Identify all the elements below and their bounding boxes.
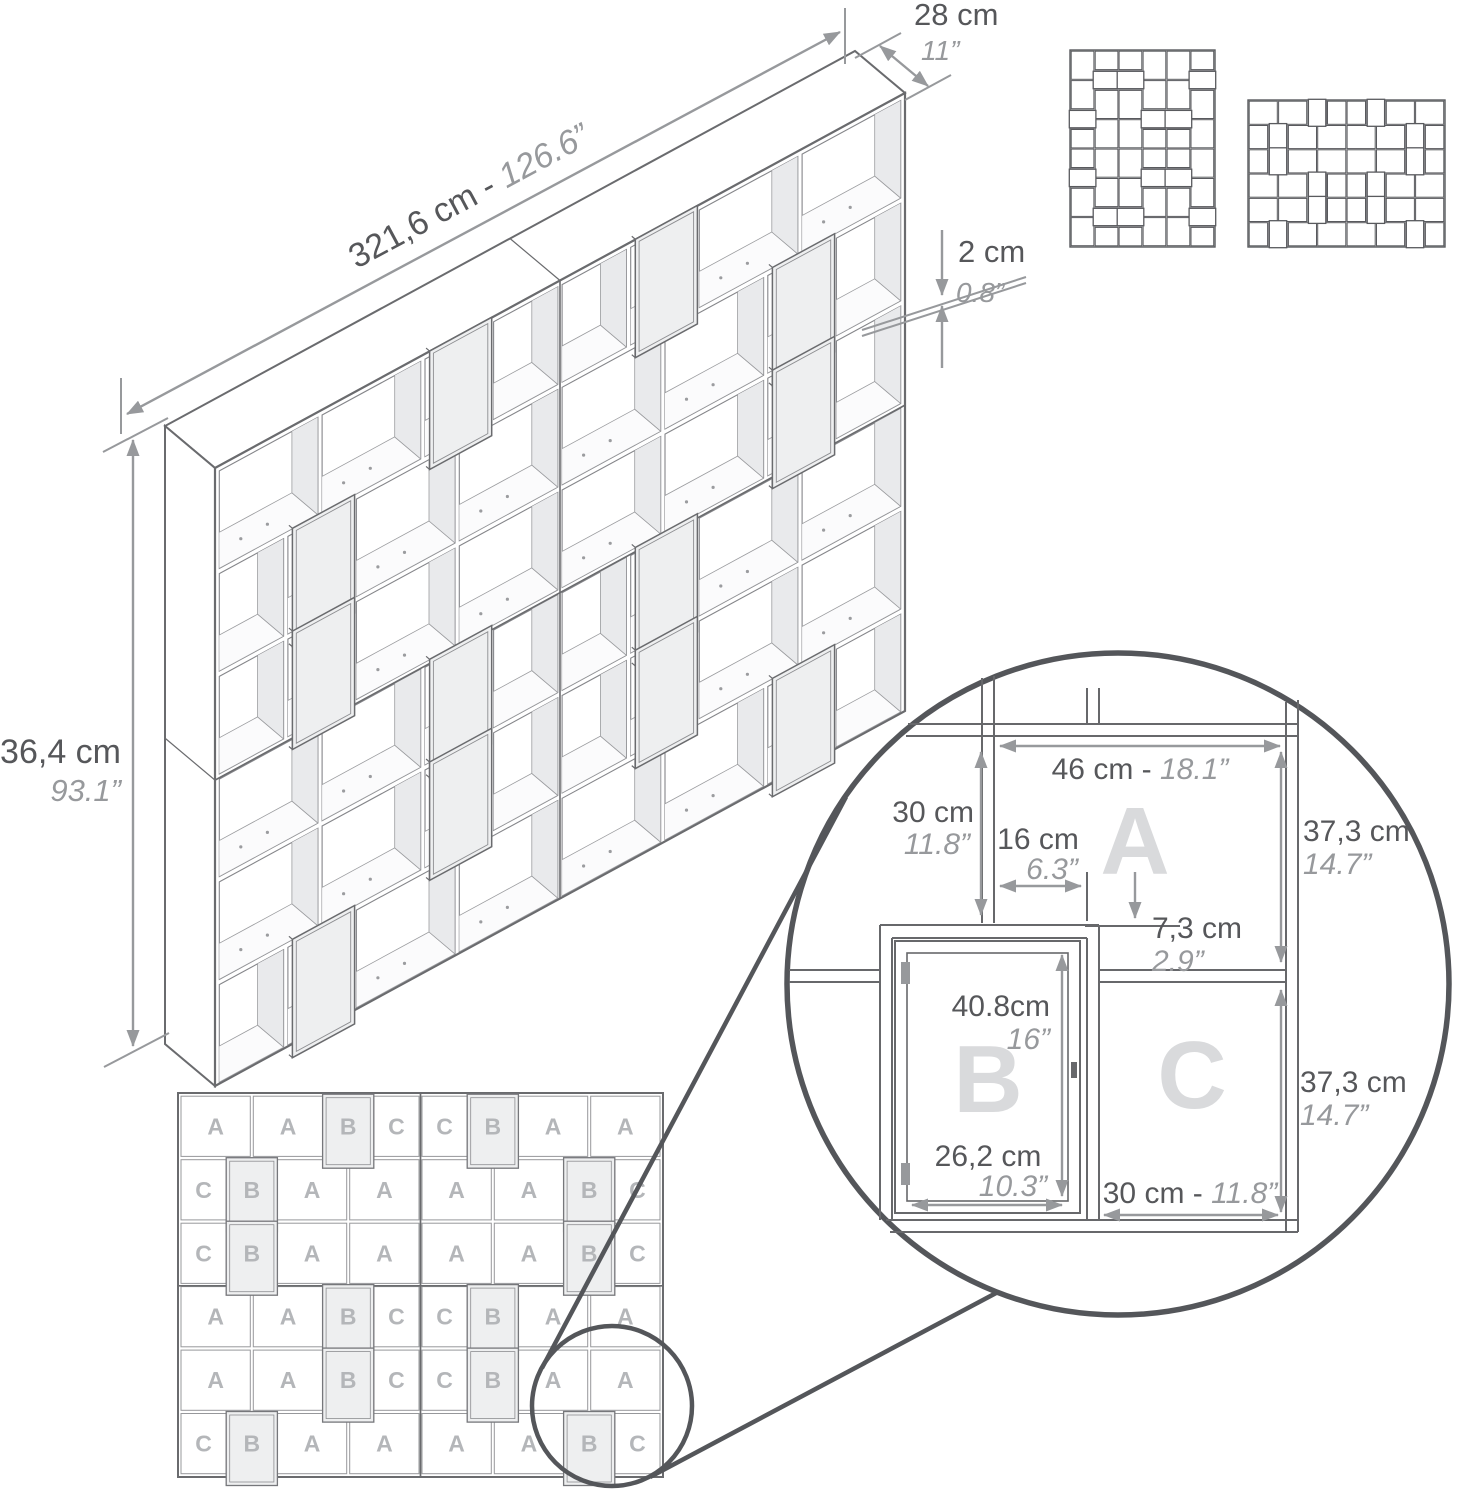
detail-view: A B C 46 cm - 18.1” 30 cm 11.8” 16 cm 6.… [789, 676, 1410, 1232]
front-cell-letter: C [388, 1367, 405, 1393]
front-cell-letter: A [545, 1304, 562, 1330]
front-cell-letter: A [207, 1113, 224, 1139]
front-cell-letter: A [280, 1113, 297, 1139]
screw-dot [685, 809, 688, 812]
front-cell-letter: A [521, 1177, 538, 1203]
front-cell-letter: C [629, 1240, 646, 1266]
thumb-door [1308, 172, 1325, 199]
front-cell-letter: B [484, 1304, 501, 1330]
thumb-door [1069, 169, 1096, 186]
screw-dot [403, 551, 406, 554]
front-cell-letter: A [376, 1431, 393, 1457]
front-cell-letter: A [617, 1367, 634, 1393]
screw-dot [376, 976, 379, 979]
front-cell-letter: C [388, 1304, 405, 1330]
screw-dot [609, 850, 612, 853]
screw-dot [376, 565, 379, 568]
front-cell-letter: A [448, 1431, 465, 1457]
screw-dot [479, 612, 482, 615]
screw-dot [849, 206, 852, 209]
screw-dot [746, 673, 749, 676]
detail-offset-in: 2.9” [1151, 945, 1206, 978]
screw-dot [369, 467, 372, 470]
door-handle [1071, 1062, 1077, 1078]
screw-dot [609, 439, 612, 442]
front-cell-letter: A [304, 1177, 321, 1203]
detail-door-width-in: 10.3” [979, 1170, 1049, 1203]
detail-door-height-in: 16” [1007, 1023, 1052, 1056]
front-elevation-grid: AABCCBAACBAAAABCCBAAAABCAABCCBAAAABCCBAA… [178, 1093, 663, 1486]
detail-door-width-cm: 26,2 cm [935, 1140, 1042, 1173]
detail-a-width-label: 46 cm - 18.1” [1052, 753, 1231, 786]
thumb-door [1269, 124, 1286, 151]
front-cell-letter: B [581, 1431, 598, 1457]
front-cell-letter: A [448, 1177, 465, 1203]
thickness-cm-label: 2 cm [958, 234, 1025, 269]
screw-dot [506, 906, 509, 909]
detail-door-height-cm: 40.8cm [952, 990, 1050, 1023]
screw-dot [609, 542, 612, 545]
front-cell-letter: A [304, 1240, 321, 1266]
front-cell-letter: B [243, 1240, 260, 1266]
front-cell-letter: B [243, 1177, 260, 1203]
screw-dot [239, 845, 242, 848]
front-cell-letter: A [304, 1431, 321, 1457]
detail-row-top-cm: 37,3 cm [1303, 815, 1410, 848]
screw-dot [712, 794, 715, 797]
screw-dot [479, 920, 482, 923]
screw-dot [849, 617, 852, 620]
detail-row-top-in: 14.7” [1303, 848, 1373, 881]
pattern-thumbnail-horizontal [1248, 99, 1445, 247]
detail-letter-c: C [1157, 1022, 1226, 1129]
thumb-door [1117, 71, 1144, 88]
screw-dot [266, 831, 269, 834]
front-cell-letter: B [243, 1431, 260, 1457]
thumb-door [1367, 196, 1384, 223]
detail-slot-height-in: 11.8” [904, 828, 972, 861]
front-cell-letter: A [376, 1177, 393, 1203]
screw-dot [342, 892, 345, 895]
thumb-door [1269, 148, 1286, 175]
detail-row-bottom-in: 14.7” [1300, 1099, 1370, 1132]
screw-dot [239, 537, 242, 540]
screw-dot [849, 514, 852, 517]
detail-slot-height-cm: 30 cm [892, 796, 974, 829]
height-in-label: 93.1” [50, 773, 122, 808]
door-hinge-top [901, 962, 910, 984]
front-cell-letter: C [195, 1177, 212, 1203]
screw-dot [342, 789, 345, 792]
detail-slot-width-cm: 16 cm [997, 823, 1079, 856]
thumb-door [1406, 124, 1423, 151]
front-cell-letter: C [629, 1431, 646, 1457]
screw-dot [719, 276, 722, 279]
screw-dot [582, 556, 585, 559]
thumb-door [1269, 221, 1286, 248]
screw-dot [342, 481, 345, 484]
thumb-door [1165, 110, 1192, 127]
shelf-dimension-diagram: 321,6 cm - 126.6” 28 cm 11” 2 cm 0.8” 23… [0, 0, 1457, 1500]
front-cell-letter: C [195, 1431, 212, 1457]
screw-dot [582, 454, 585, 457]
screw-dot [719, 687, 722, 690]
front-cell-letter: A [521, 1431, 538, 1457]
screw-dot [479, 509, 482, 512]
screw-dot [685, 500, 688, 503]
front-cell-letter: C [436, 1113, 453, 1139]
front-cell-letter: C [195, 1240, 212, 1266]
screw-dot [506, 495, 509, 498]
thumb-door [1367, 99, 1384, 126]
screw-dot [403, 962, 406, 965]
screw-dot [582, 864, 585, 867]
screw-dot [685, 398, 688, 401]
front-cell-letter: A [545, 1113, 562, 1139]
thumb-door [1406, 148, 1423, 175]
front-cell-letter: C [436, 1367, 453, 1393]
thumb-door [1406, 221, 1423, 248]
thumb-door [1308, 99, 1325, 126]
front-cell-letter: B [484, 1367, 501, 1393]
screw-dot [239, 948, 242, 951]
pattern-thumbnail-vertical [1069, 50, 1215, 247]
front-cell-letter: A [448, 1240, 465, 1266]
depth-extension-back [855, 33, 901, 58]
thumb-door [1069, 110, 1096, 127]
screw-dot [369, 878, 372, 881]
door-hinge-bottom [901, 1163, 910, 1185]
detail-slot-width-in: 6.3” [1026, 853, 1080, 886]
thumb-door [1367, 172, 1384, 199]
screw-dot [403, 654, 406, 657]
front-cell-letter: A [376, 1240, 393, 1266]
thumb-door [1189, 71, 1216, 88]
thumb-door [1141, 169, 1168, 186]
height-extension-bottom [104, 1033, 169, 1067]
detail-c-width-label: 30 cm - 11.8” [1103, 1177, 1280, 1210]
height-extension-top [103, 418, 168, 452]
front-cell-letter: B [484, 1113, 501, 1139]
thumb-door [1308, 196, 1325, 223]
detail-offset-cm: 7,3 cm [1152, 912, 1242, 945]
screw-dot [822, 529, 825, 532]
shelf-left-side [165, 426, 215, 1086]
front-cell-letter: A [280, 1304, 297, 1330]
screw-dot [506, 598, 509, 601]
depth-extension-front [905, 75, 951, 100]
thumb-door [1117, 208, 1144, 225]
height-cm-label: 236,4 cm [0, 733, 121, 771]
front-cell-letter: A [280, 1367, 297, 1393]
front-cell-letter: B [581, 1240, 598, 1266]
technical-drawing-page: 321,6 cm - 126.6” 28 cm 11” 2 cm 0.8” 23… [0, 0, 1457, 1500]
depth-cm-label: 28 cm [914, 0, 998, 32]
front-cell-letter: A [207, 1304, 224, 1330]
front-cell-letter: B [340, 1367, 357, 1393]
screw-dot [746, 570, 749, 573]
front-cell-letter: A [545, 1367, 562, 1393]
thumb-door [1093, 71, 1120, 88]
screw-dot [266, 523, 269, 526]
thumb-door [1093, 208, 1120, 225]
screw-dot [376, 668, 379, 671]
front-cell-letter: A [521, 1240, 538, 1266]
front-cell-letter: B [340, 1304, 357, 1330]
front-cell-letter: C [436, 1304, 453, 1330]
front-cell-letter: A [617, 1113, 634, 1139]
screw-dot [369, 775, 372, 778]
thumb-door [1189, 208, 1216, 225]
front-cell-letter: C [388, 1113, 405, 1139]
screw-dot [719, 584, 722, 587]
screw-dot [822, 220, 825, 223]
front-cell-letter: A [207, 1367, 224, 1393]
depth-in-label: 11” [921, 35, 961, 66]
thumb-door [1165, 169, 1192, 186]
screw-dot [266, 934, 269, 937]
screw-dot [746, 262, 749, 265]
front-cell-letter: B [581, 1177, 598, 1203]
detail-row-bottom-cm: 37,3 cm [1300, 1066, 1407, 1099]
screw-dot [712, 486, 715, 489]
screw-dot [712, 383, 715, 386]
magnifier-tangent-lower [650, 1292, 998, 1477]
thumb-door [1141, 110, 1168, 127]
screw-dot [822, 631, 825, 634]
thickness-in-label: 0.8” [956, 277, 1006, 308]
front-cell-letter: B [340, 1113, 357, 1139]
